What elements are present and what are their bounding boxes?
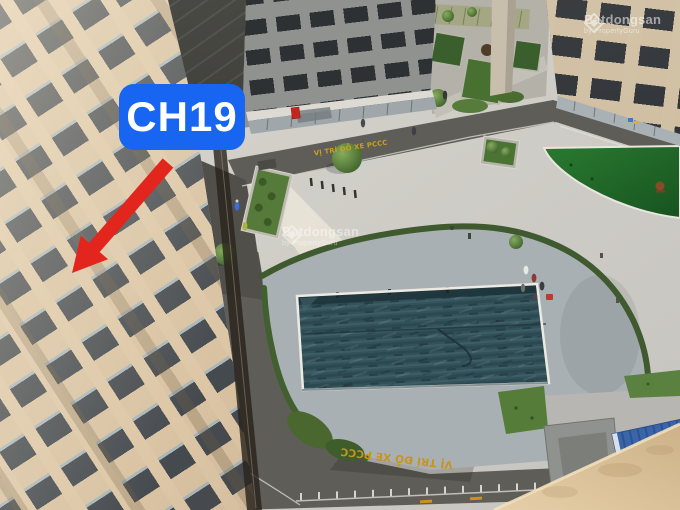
fire-hydrant-box <box>291 107 300 119</box>
storefront-base <box>246 90 437 134</box>
red-arrow <box>72 158 173 273</box>
overlay-details <box>0 0 680 510</box>
aerial-photo: VỊ TRÍ ĐỖ XE PCCC VỊ TRÍ ĐỖ XE PCCC <box>0 0 680 510</box>
building-edge-shadow <box>213 146 262 510</box>
apartment-unit-label: CH19 <box>119 84 245 150</box>
right-storefront-base <box>556 96 680 146</box>
